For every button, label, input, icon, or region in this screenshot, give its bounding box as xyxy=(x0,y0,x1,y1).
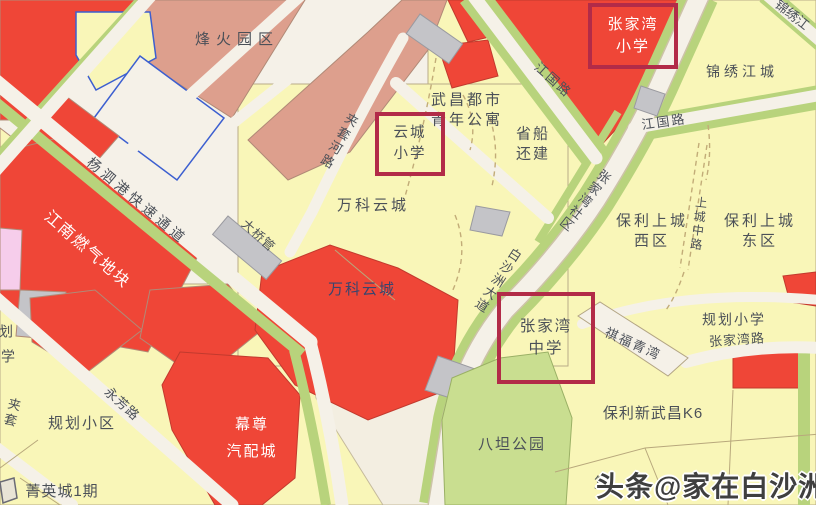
yuncheng-primary-line2: 小学 xyxy=(394,144,427,165)
zjw-middle-line2: 中学 xyxy=(528,338,563,360)
label-baoli-east-line1: 保利上城 xyxy=(724,212,796,232)
highlight-yuncheng-primary: 云城 小学 xyxy=(375,112,445,176)
label-baoli-west: 保利上城 西区 xyxy=(616,212,688,251)
map-layers xyxy=(0,0,816,505)
label-shengchuan: 省船 还建 xyxy=(516,125,550,164)
label-guihua-primary: 规划小学 xyxy=(702,312,766,329)
label-baoli-west-line2: 西区 xyxy=(634,231,670,251)
label-wanke-yuncheng-1: 万科云城 xyxy=(337,197,409,215)
label-partial-xue: 学 xyxy=(1,349,15,366)
highlight-zhangjiawan-primary: 张家湾 小学 xyxy=(588,3,678,69)
zjw-primary-line2: 小学 xyxy=(616,36,650,58)
label-baoli-west-line1: 保利上城 xyxy=(616,212,688,232)
label-batan-park: 八坦公园 xyxy=(478,436,546,454)
label-baoli-k6: 保利新武昌K6 xyxy=(603,405,703,423)
label-wanke-yuncheng-2: 万科云城 xyxy=(328,281,396,299)
map-canvas[interactable]: 烽火园区 锦绣江城 锦绣江 江国路 江国路 武昌都市 青年公寓 省船 还建 万科… xyxy=(0,0,816,505)
zjw-middle-line1: 张家湾 xyxy=(520,316,573,338)
label-jinxiu-jiangcheng: 锦绣江城 xyxy=(706,64,778,81)
label-baoli-east: 保利上城 东区 xyxy=(724,212,796,251)
highlight-zhangjiawan-middle: 张家湾 中学 xyxy=(497,292,595,384)
yuncheng-primary-line1: 云城 xyxy=(394,123,427,144)
corner-symbol xyxy=(0,478,17,503)
label-wuchang-apartment-line1: 武昌都市 xyxy=(431,91,503,111)
label-muzun-autoparts: 幕尊 汽配城 xyxy=(226,411,277,465)
label-muzun-line1: 幕尊 xyxy=(235,411,269,438)
label-baoli-east-line2: 东区 xyxy=(742,231,778,251)
watermark-toutiao: 头条@家在白沙洲 xyxy=(596,465,816,505)
label-jingying-city: 菁英城1期 xyxy=(25,483,98,501)
label-shengchuan-line2: 还建 xyxy=(516,144,550,164)
label-partial-hua: 划 xyxy=(0,324,13,341)
label-guihua-xiaoqu: 规划小区 xyxy=(48,415,116,433)
zjw-primary-line1: 张家湾 xyxy=(607,14,658,36)
label-muzun-line2: 汽配城 xyxy=(226,438,277,465)
label-shengchuan-line1: 省船 xyxy=(516,125,550,145)
label-fenghuo-district: 烽火园区 xyxy=(195,31,279,49)
